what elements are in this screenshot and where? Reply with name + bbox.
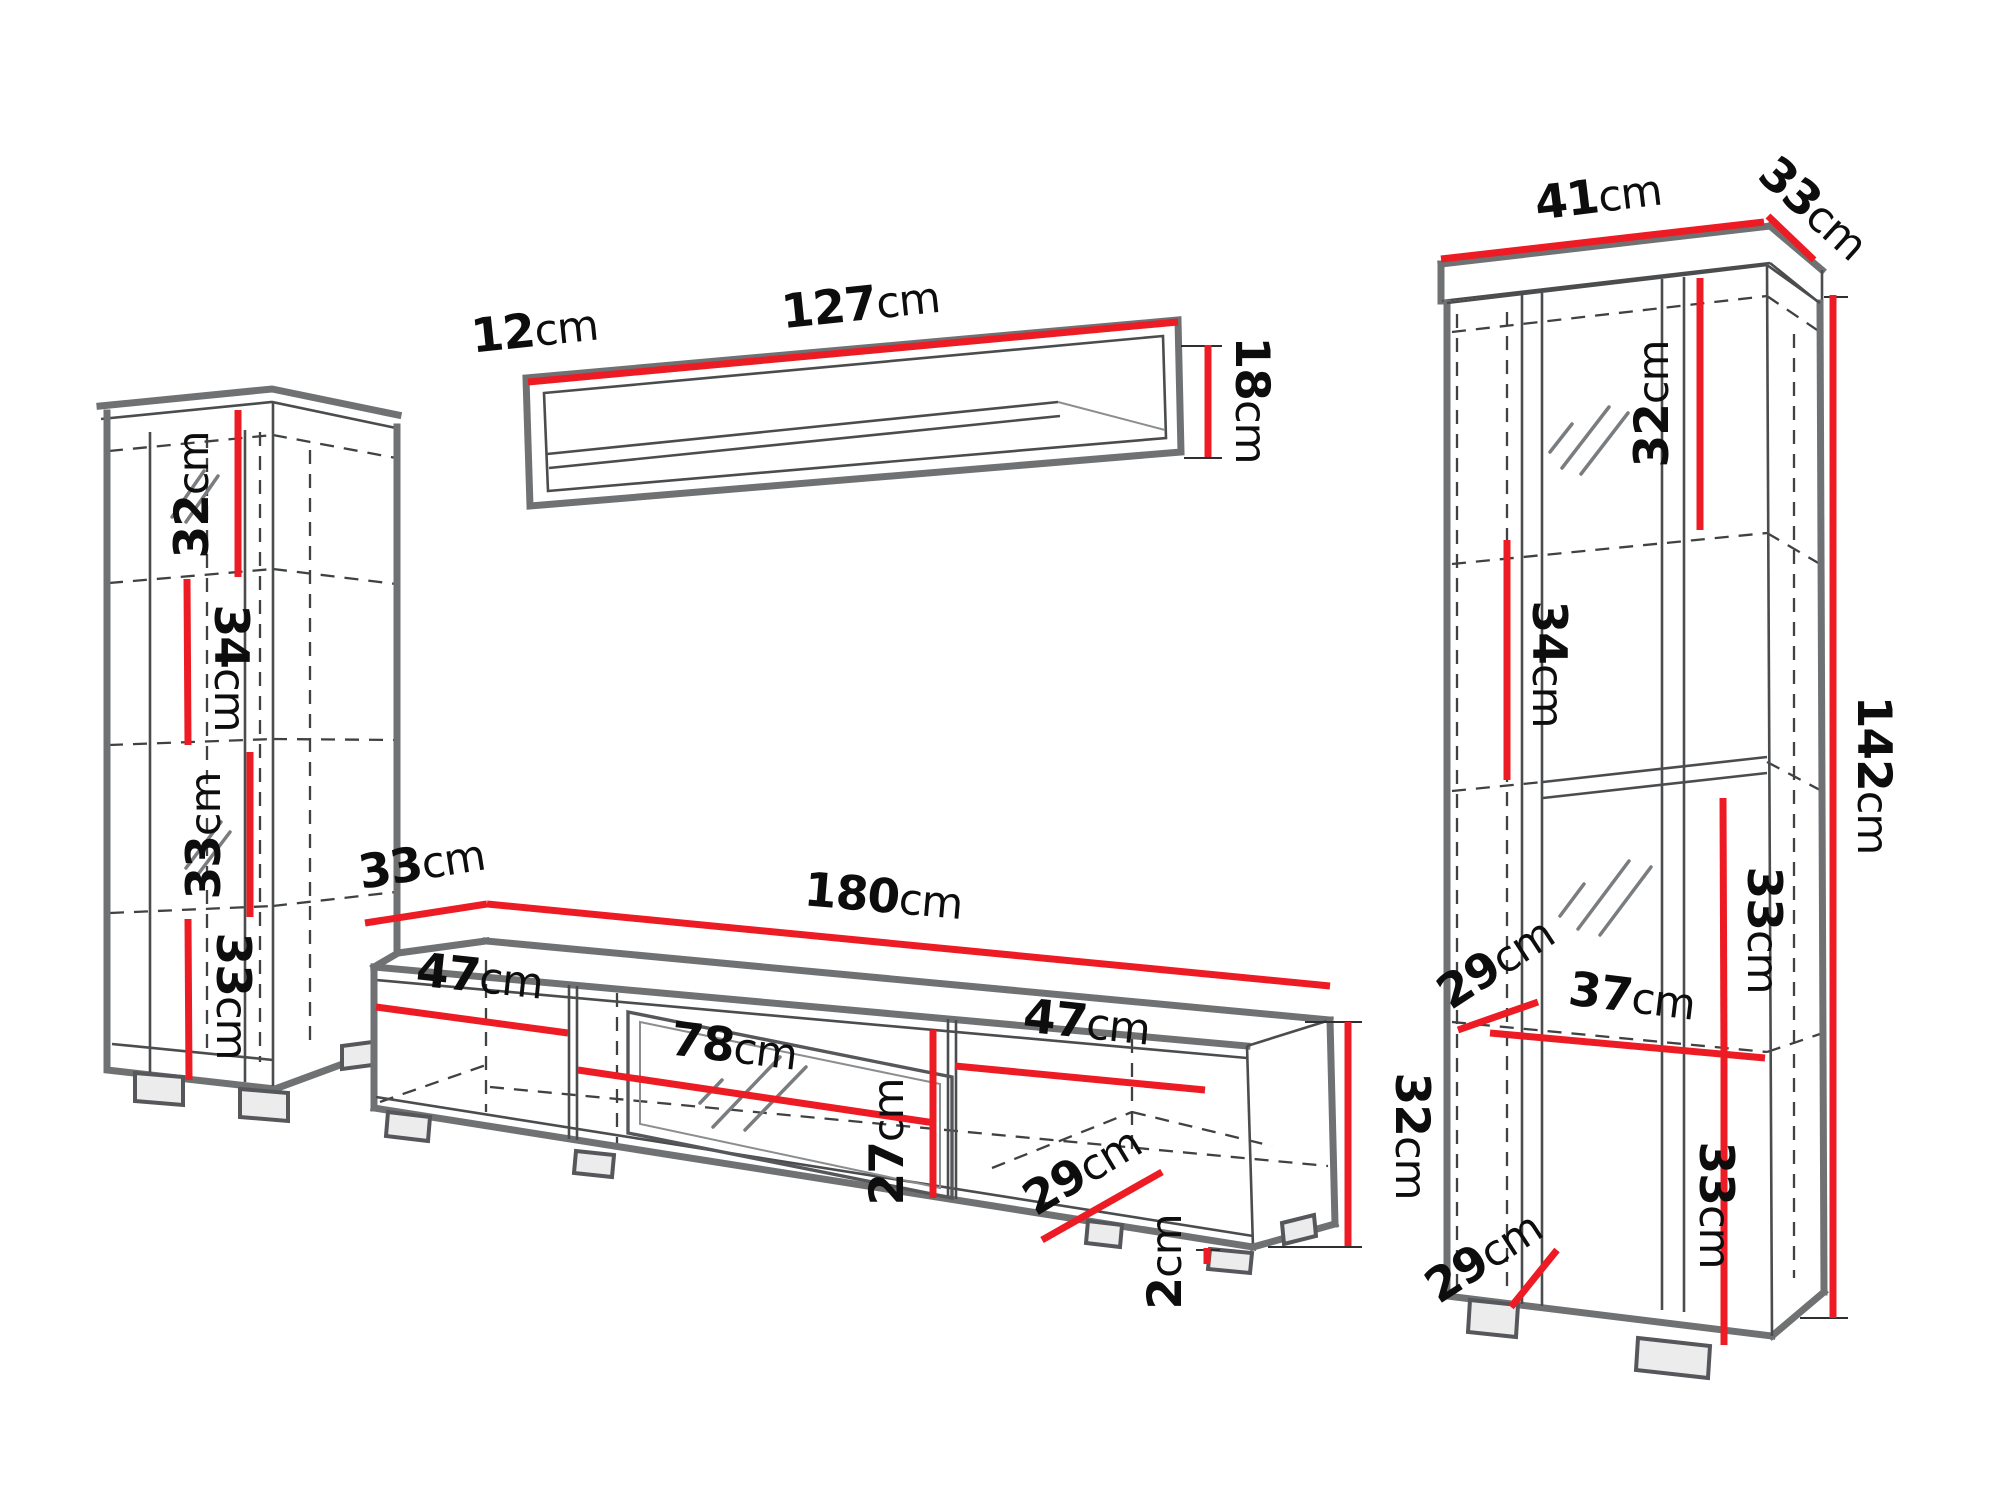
dim-label-right-cabinet-section-4: 33cm [1688, 1142, 1743, 1269]
dim-label-tv-plinth-height: 2cm [1138, 1214, 1193, 1309]
dim-label-left-cabinet-section-4: 33cm [205, 933, 260, 1060]
wall-shelf-extension-lines [1181, 346, 1222, 458]
dim-label-right-cabinet-section-2: 34cm [1521, 601, 1576, 728]
dim-label-right-cabinet-section-1: 32cm [1625, 341, 1680, 468]
dim-label-shelf-depth: 12cm [468, 297, 600, 365]
tv-stand-side-fill [1247, 1020, 1335, 1247]
dim-label-left-cabinet-section-1: 32cm [165, 432, 220, 559]
dim-label-left-cabinet-section-3: 33cm [177, 773, 232, 900]
tv-stand-drawing: 33cm 180cm 47cm 78cm 27cm 47cm 29cm 2cm … [355, 827, 1439, 1310]
dim-label-tv-width: 180cm [802, 862, 965, 931]
dim-label-shelf-height: 18cm [1224, 337, 1279, 464]
dim-label-left-cabinet-section-2: 34cm [203, 605, 258, 732]
right-cabinet-drawing: 41cm 33cm 32cm 34cm 142cm 33cm 29cm 37cm… [1415, 146, 1901, 1378]
dim-label-shelf-width: 127cm [779, 269, 943, 340]
dim-label-right-cabinet-width: 41cm [1532, 162, 1665, 232]
wall-shelf-drawing: 12cm 127cm 18cm [468, 269, 1279, 506]
dim-label-right-cabinet-section-3: 33cm [1736, 867, 1791, 994]
dim-label-tv-niche-height: 27cm [860, 1079, 915, 1206]
diagram-canvas: 32cm 34cm 33cm 33cm 12cm 127cm 18cm [0, 0, 2000, 1499]
left-cabinet-drawing: 32cm 34cm 33cm 33cm [100, 389, 398, 1121]
dim-label-tv-height: 32cm [1384, 1073, 1439, 1200]
dim-label-right-cabinet-height: 142cm [1846, 696, 1901, 855]
furniture-dimension-diagram: 32cm 34cm 33cm 33cm 12cm 127cm 18cm [0, 0, 2000, 1499]
